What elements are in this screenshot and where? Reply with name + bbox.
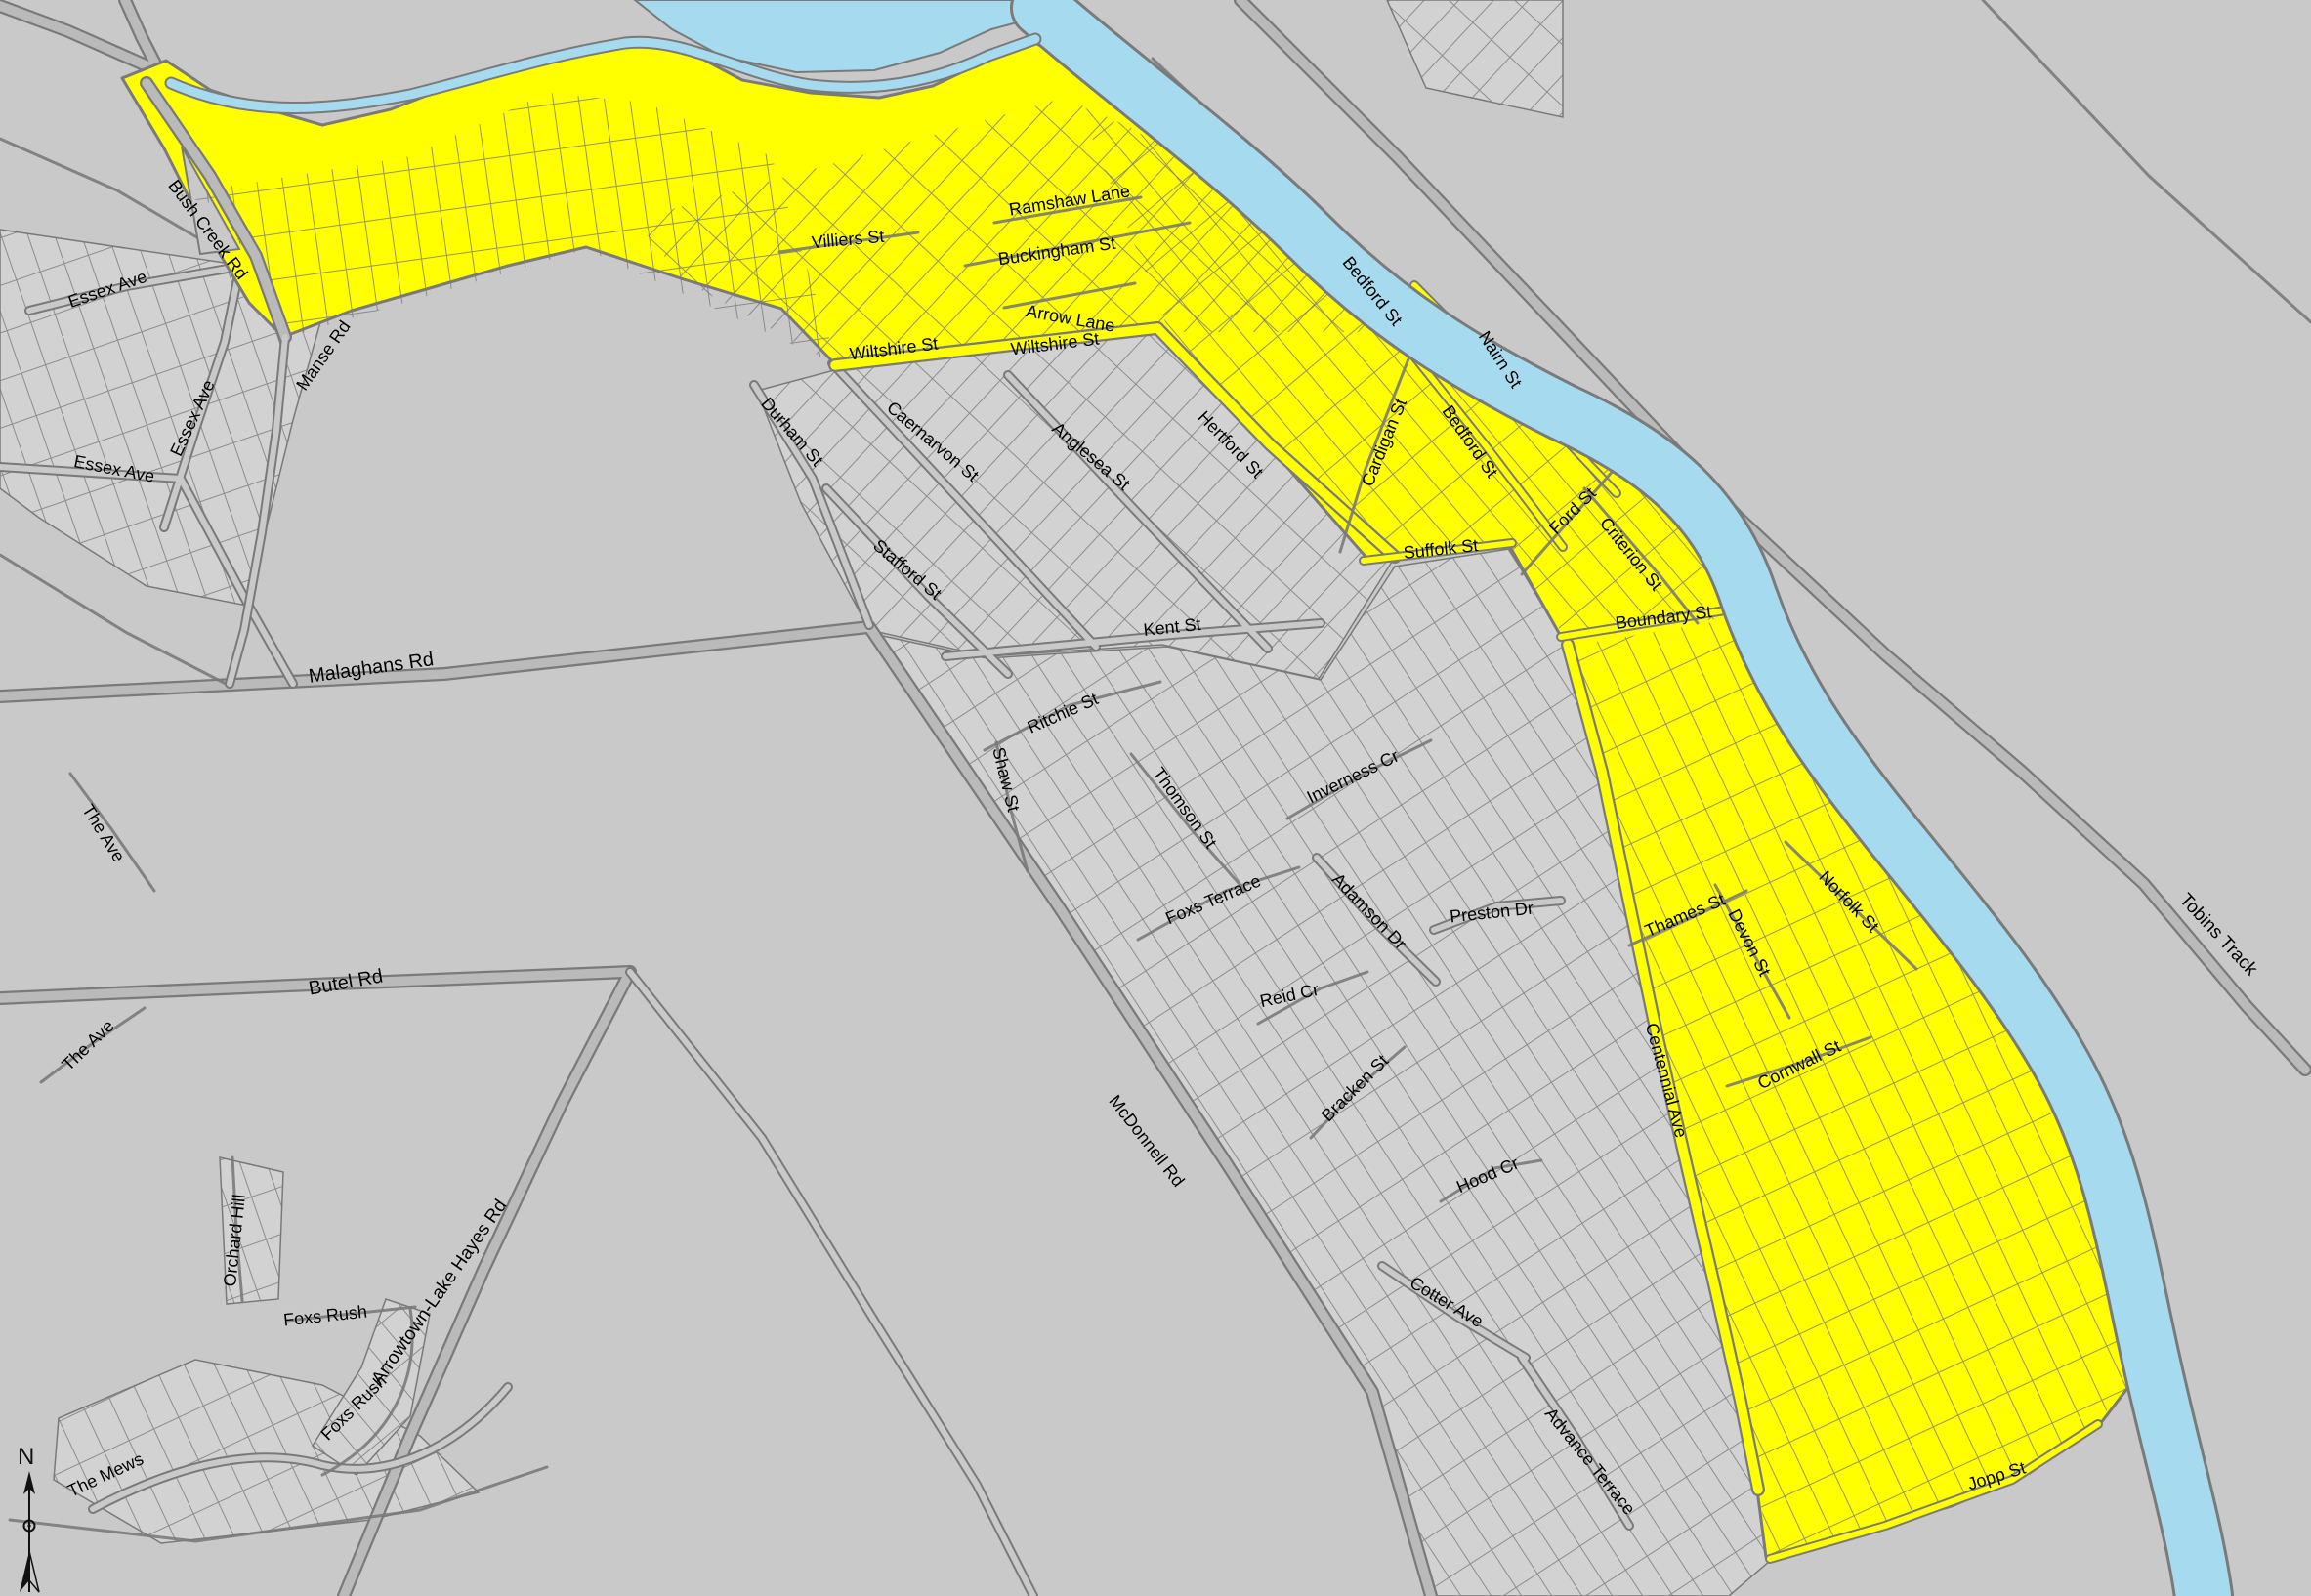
compass: N (10, 1444, 55, 1596)
map-graphic (0, 0, 2311, 1596)
north-arrow-icon (10, 1469, 55, 1596)
map-canvas: Bush Creek RdEssex AveEssex AveEssex Ave… (0, 0, 2311, 1596)
north-label: N (18, 1444, 34, 1471)
